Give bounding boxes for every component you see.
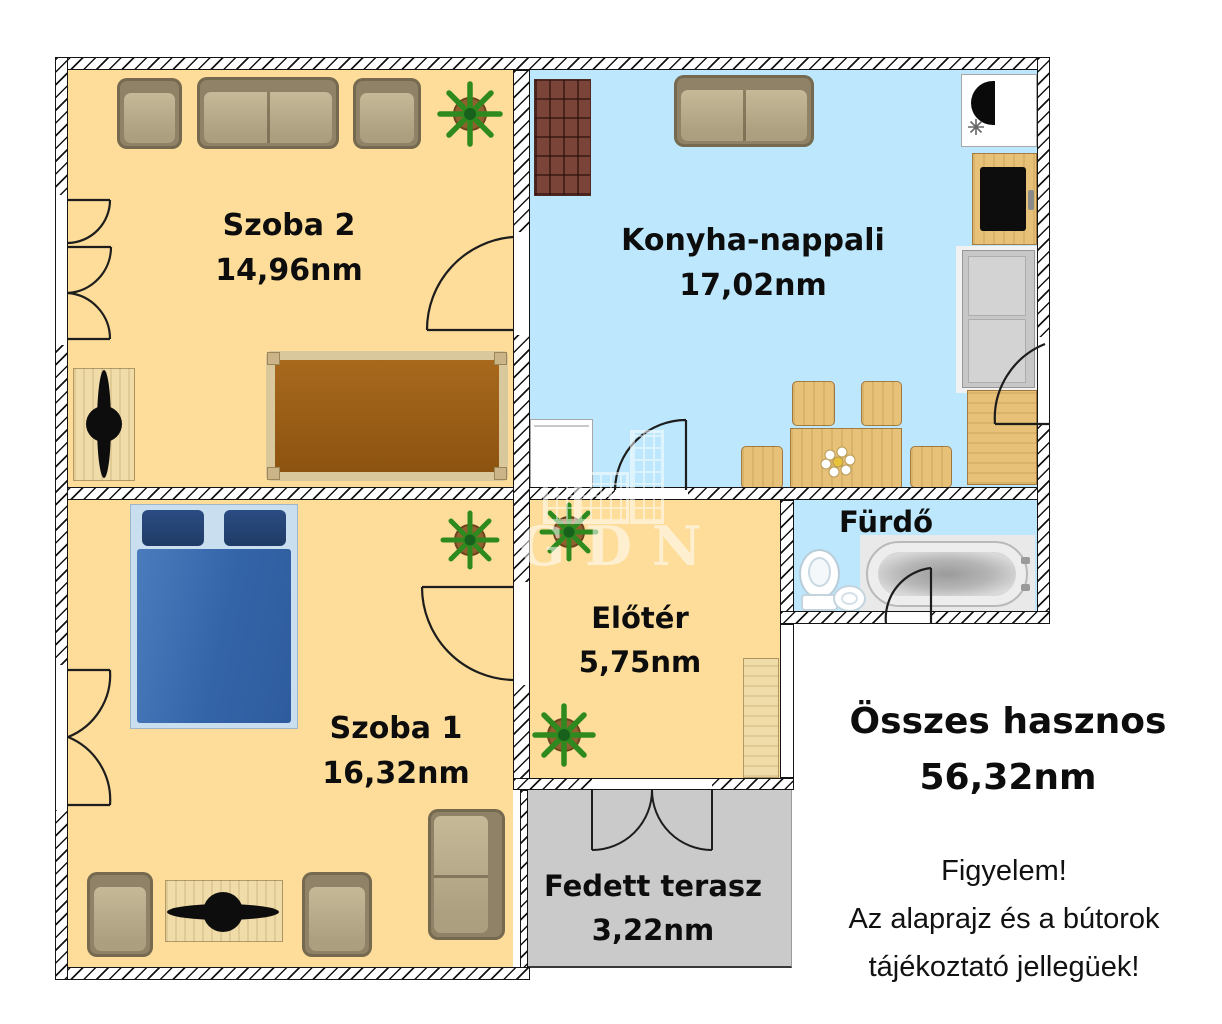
room-label-furdo: Fürdő [839, 501, 933, 545]
coffee-table-icon [165, 880, 283, 942]
sofa-icon [197, 77, 339, 149]
sink-bowl-icon [971, 81, 995, 125]
chair-icon [741, 446, 783, 489]
room-area: 5,75nm [579, 641, 701, 685]
opening-kitchen-eloter-door [615, 487, 688, 500]
cooktop-counter-icon [972, 153, 1037, 245]
disclaimer-line: tájékoztató jellegüek! [848, 944, 1159, 992]
room-label-eloter: Előtér 5,75nm [579, 597, 701, 684]
double-bed-icon [130, 504, 298, 729]
bathtub-icon [866, 541, 1028, 607]
armchair-icon [353, 78, 421, 149]
disclaimer-block: Figyelem! Az alaprajz és a bútorok tájék… [848, 848, 1159, 992]
room-name: Szoba 2 [215, 203, 363, 248]
total-area-block: Összes hasznos 56,32nm [850, 694, 1167, 806]
total-area-label: Összes hasznos [850, 694, 1167, 750]
opening-terrace-door [592, 778, 712, 790]
wall-eloter-right-lower [780, 624, 794, 778]
chair-icon [792, 381, 835, 426]
opening-furdo-door [886, 611, 931, 624]
wall-szoba1-bottom [55, 967, 530, 980]
room-label-terasz: Fedett terasz 3,22nm [544, 865, 762, 952]
wall-top [55, 57, 1050, 70]
room-name: Szoba 1 [322, 706, 470, 751]
opening-kitchen-entry [1037, 337, 1050, 424]
cabinet-icon [967, 390, 1037, 485]
room-name: Előtér [579, 597, 701, 641]
armchair-icon [87, 872, 153, 957]
room-label-konyha: Konyha-nappali 17,02nm [621, 218, 885, 308]
wall-terrace-left [520, 790, 528, 968]
kitchen-sink-icon [961, 74, 1037, 147]
sofa-icon [674, 75, 814, 147]
room-area: 3,22nm [544, 909, 762, 953]
opening-szoba1-door [513, 582, 530, 685]
wall-eloter-right [780, 500, 794, 624]
floor-plan: Szoba 2 14,96nm Konyha-nappali 17,02nm S… [0, 0, 1222, 1024]
opening-szoba2-balcony-door [55, 195, 68, 345]
room-name: Fedett terasz [544, 865, 762, 909]
appliance-icon [530, 419, 593, 490]
fridge-icon [962, 250, 1035, 388]
bidet-icon [833, 585, 866, 612]
bed-icon [266, 351, 508, 481]
armchair-icon [302, 872, 372, 957]
disclaimer-line: Az alaprajz és a bútorok [848, 896, 1159, 944]
room-name: Konyha-nappali [621, 218, 885, 263]
room-area: 14,96nm [215, 248, 363, 293]
disclaimer-line: Figyelem! [848, 848, 1159, 896]
room-name: Fürdő [839, 501, 933, 545]
room-area: 16,32nm [322, 751, 470, 796]
chair-icon [910, 446, 952, 488]
wall-middle [55, 487, 1050, 500]
opening-szoba2-door [513, 232, 530, 335]
room-area: 17,02nm [621, 263, 885, 308]
total-area-value: 56,32nm [850, 750, 1167, 806]
sofa-icon [428, 809, 505, 940]
wardrobe-icon [743, 658, 779, 778]
opening-szoba1-balcony-door [55, 665, 68, 810]
room-label-szoba1: Szoba 1 16,32nm [322, 706, 470, 796]
chair-icon [861, 381, 902, 426]
chimney-icon [534, 79, 591, 196]
desk-icon [73, 368, 135, 481]
armchair-icon [117, 78, 182, 149]
room-label-szoba2: Szoba 2 14,96nm [215, 203, 363, 293]
dining-table-icon [790, 428, 902, 490]
